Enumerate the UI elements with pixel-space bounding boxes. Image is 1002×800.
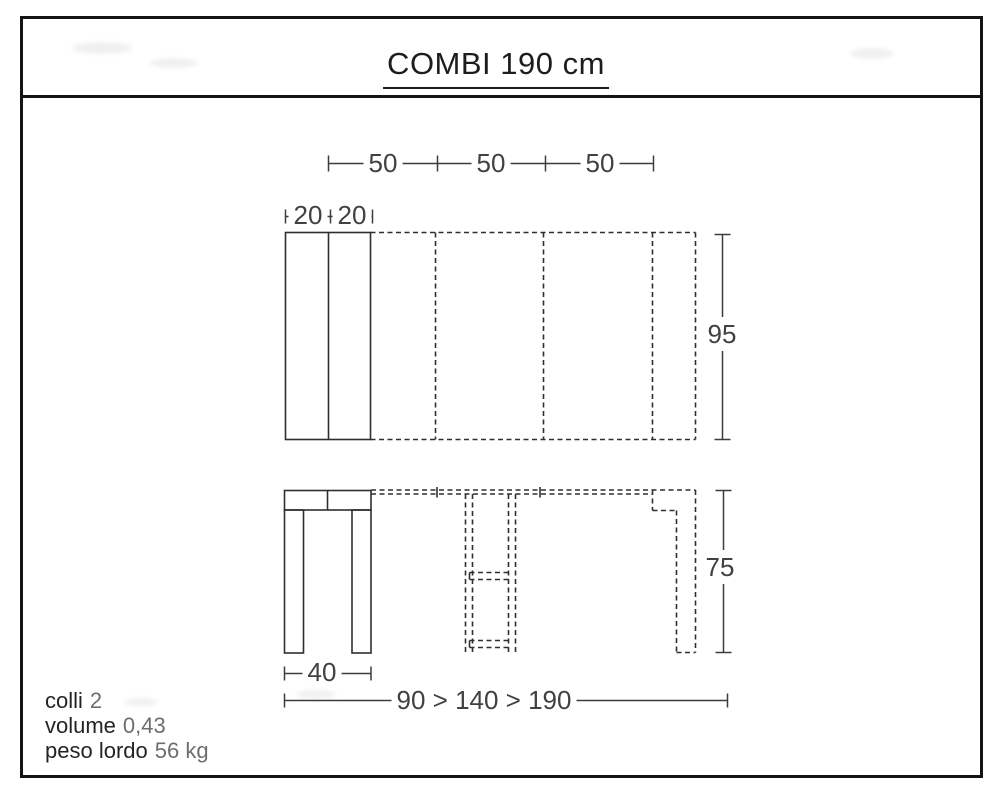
spec-row-peso-lordo: peso lordo56 kg [45, 738, 209, 763]
drawing-frame [20, 18, 983, 777]
spec-label: colli [45, 688, 83, 713]
dim-leaf-width-1: 50 [364, 148, 403, 178]
dim-closed-top-2: 20 [333, 200, 372, 230]
dim-extension-range: 90 > 140 > 190 [392, 685, 577, 715]
spec-value: 56 kg [155, 738, 209, 763]
technical-drawing-page: COMBI 190 cm 50 50 50 20 20 95 75 40 90 … [0, 0, 1002, 800]
page-title: COMBI 190 cm [383, 46, 609, 89]
plan-dimension-lines [286, 156, 731, 440]
spec-label: peso lordo [45, 738, 148, 763]
spec-row-volume: volume0,43 [45, 713, 209, 738]
plan-view [286, 233, 696, 440]
package-specs: colli2 volume0,43 peso lordo56 kg [45, 688, 209, 763]
spec-row-colli: colli2 [45, 688, 209, 713]
dim-closed-top-1: 20 [289, 200, 328, 230]
dim-leaf-width-3: 50 [581, 148, 620, 178]
spec-value: 0,43 [123, 713, 166, 738]
spec-value: 2 [90, 688, 102, 713]
dim-depth: 95 [706, 317, 739, 351]
front-view [285, 487, 696, 653]
technical-drawing-canvas [0, 0, 1002, 800]
dim-leaf-width-2: 50 [472, 148, 511, 178]
dim-base-width: 40 [303, 657, 342, 687]
dim-height: 75 [704, 550, 737, 584]
spec-label: volume [45, 713, 116, 738]
